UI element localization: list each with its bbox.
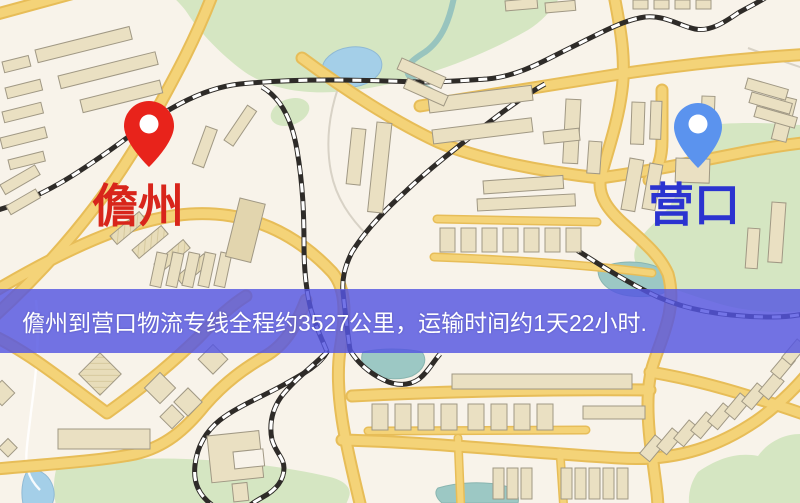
origin-label: 儋州	[92, 180, 184, 232]
map-image: 儋州 营口	[0, 0, 800, 503]
origin-pin-hole	[140, 115, 159, 134]
destination-pin-hole	[689, 115, 708, 134]
route-info-text: 儋州到营口物流专线全程约3527公里，运输时间约1天22小时.	[0, 304, 647, 338]
destination-label: 营口	[648, 179, 740, 231]
route-info-banner: 儋州到营口物流专线全程约3527公里，运输时间约1天22小时.	[0, 289, 800, 353]
map-canvas[interactable]: 儋州 营口 儋州到营口物流专线全程约3527公里，运输时间约1天22小时.	[0, 0, 800, 503]
